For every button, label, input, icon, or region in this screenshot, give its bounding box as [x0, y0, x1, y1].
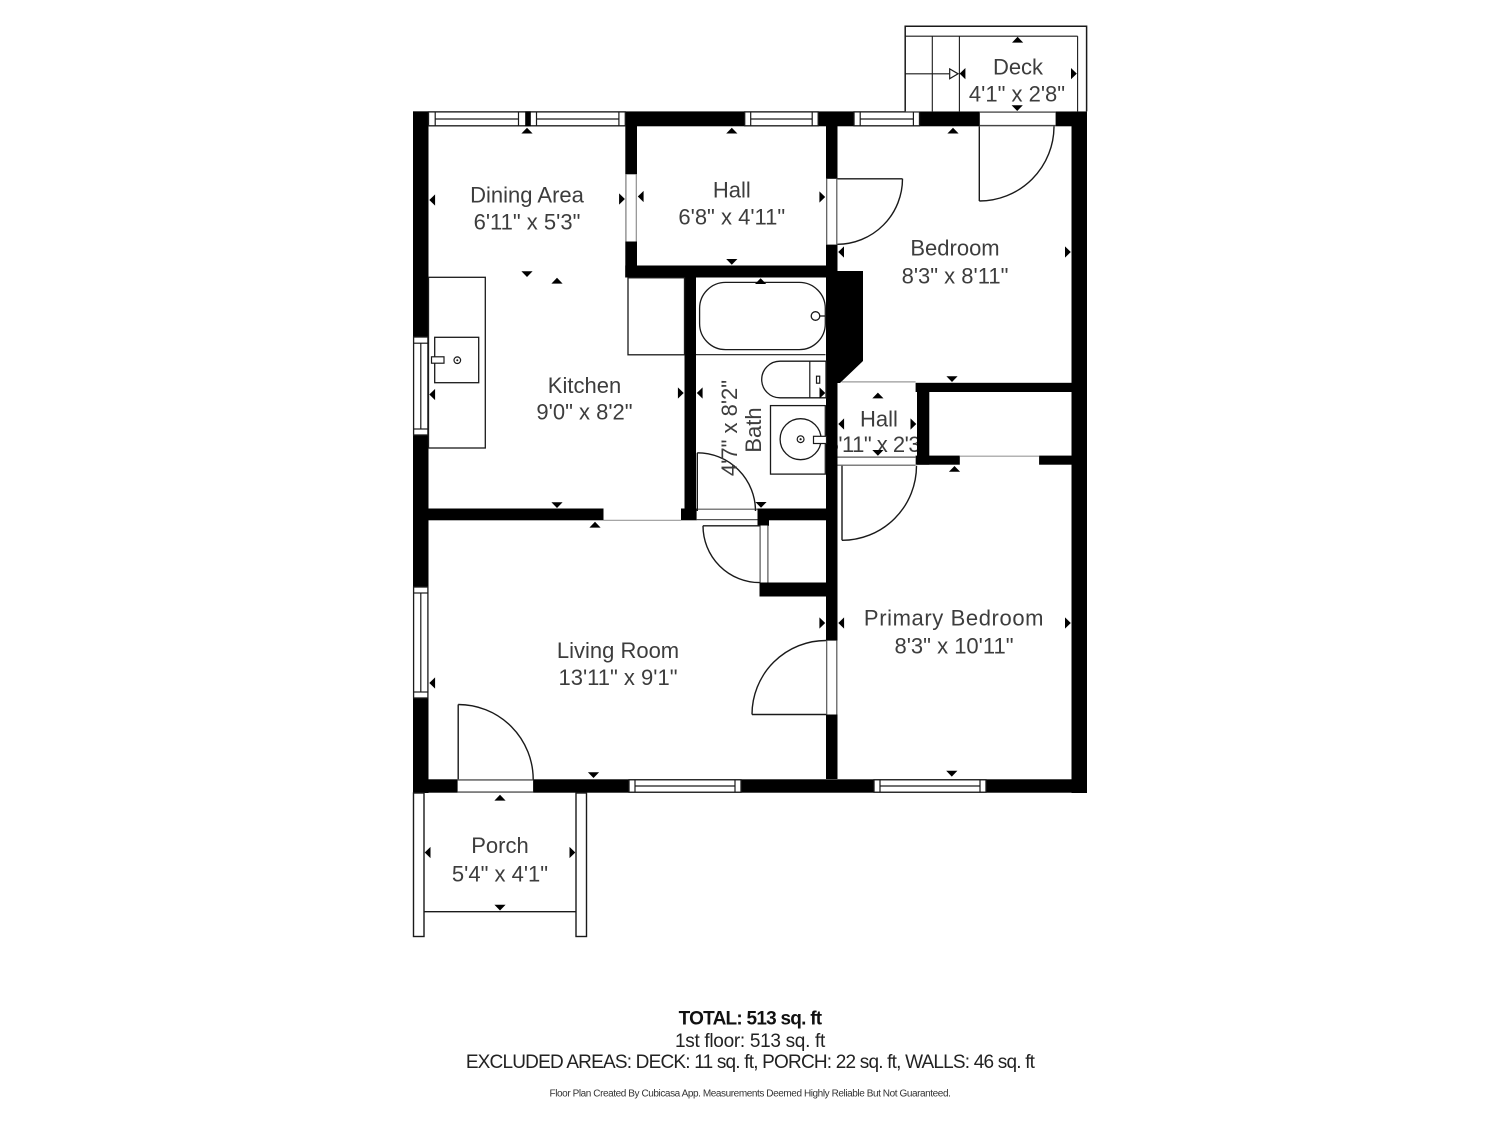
svg-text:6'8" x 4'11": 6'8" x 4'11" — [678, 205, 785, 230]
svg-text:Deck: Deck — [993, 54, 1044, 79]
svg-text:4'7" x 8'2": 4'7" x 8'2" — [717, 380, 742, 476]
svg-text:Bath: Bath — [741, 407, 766, 452]
svg-text:1st floor: 513 sq. ft: 1st floor: 513 sq. ft — [675, 1031, 826, 1052]
svg-text:5'4" x 4'1": 5'4" x 4'1" — [452, 862, 548, 887]
svg-text:Dining Area: Dining Area — [470, 183, 585, 208]
svg-text:Living Room: Living Room — [557, 638, 679, 663]
svg-text:Floor Plan Created By Cubicasa: Floor Plan Created By Cubicasa App. Meas… — [550, 1089, 951, 1100]
svg-text:Hall: Hall — [860, 407, 898, 432]
svg-text:9'0" x 8'2": 9'0" x 8'2" — [536, 400, 632, 425]
svg-text:Primary Bedroom: Primary Bedroom — [864, 606, 1044, 631]
svg-text:Porch: Porch — [471, 833, 528, 858]
svg-text:TOTAL: 513 sq. ft: TOTAL: 513 sq. ft — [679, 1009, 823, 1030]
svg-text:Kitchen: Kitchen — [548, 373, 621, 398]
svg-text:8'3" x 8'11": 8'3" x 8'11" — [902, 264, 1009, 289]
svg-text:13'11" x 9'1": 13'11" x 9'1" — [558, 665, 677, 690]
svg-text:EXCLUDED AREAS: DECK: 11 sq. f: EXCLUDED AREAS: DECK: 11 sq. ft, PORCH: … — [466, 1052, 1036, 1073]
svg-text:6'11" x 5'3": 6'11" x 5'3" — [474, 210, 581, 235]
svg-text:8'3" x 10'11": 8'3" x 10'11" — [894, 634, 1013, 659]
svg-text:Bedroom: Bedroom — [910, 236, 999, 261]
svg-text:Hall: Hall — [713, 178, 751, 203]
svg-text:4'1" x 2'8": 4'1" x 2'8" — [969, 82, 1065, 107]
